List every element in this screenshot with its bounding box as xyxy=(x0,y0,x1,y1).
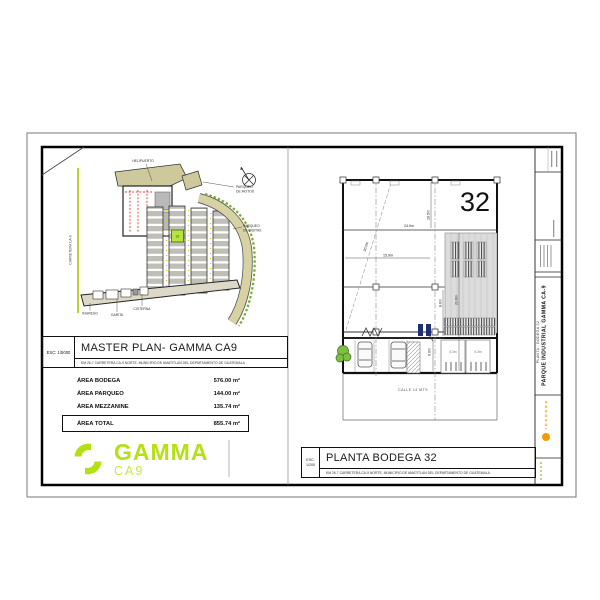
car-icon xyxy=(391,342,406,368)
area-table: ÁREA BODEGA 576.00 m² ÁREA PARQUEO 144.0… xyxy=(62,374,249,432)
car-icon xyxy=(358,342,372,367)
gamma-logo-icon xyxy=(70,441,106,477)
area-value: 144.00 m² xyxy=(214,391,240,397)
highlighted-unit-32: 32 xyxy=(172,230,184,242)
dim-right-upper: 16.5m xyxy=(427,210,431,220)
strip-text-placeholder xyxy=(551,151,552,167)
strip-text-placeholder xyxy=(556,151,557,167)
sheet-linework: CARRETERA CA-9 HELIPUERTO PARQUEO DE MOT… xyxy=(0,0,600,600)
strip-text-placeholder xyxy=(553,220,554,237)
strip-orange-logo-icon xyxy=(542,433,550,441)
dock-dim-right: 5.3m xyxy=(474,350,481,354)
garita-label: GARITA xyxy=(111,313,124,317)
floorplan-unit-number: 32 xyxy=(460,187,490,217)
highlighted-unit-number: 32 xyxy=(176,235,180,239)
hatched-zone xyxy=(407,342,420,373)
area-value: 576.00 m² xyxy=(214,378,240,384)
area-row-parqueo: ÁREA PARQUEO 144.00 m² xyxy=(62,387,249,400)
parqueo-visitas-label-2: DE VISITAS xyxy=(243,229,262,233)
strip-project-title: PARQUE INDUSTRIAL GAMMA CA-9 xyxy=(542,276,551,396)
drawing-sheet: CARRETERA CA-9 HELIPUERTO PARQUEO DE MOT… xyxy=(0,0,600,600)
dim-right-full: 21.6m xyxy=(455,295,459,305)
area-total-box: ÁREA TOTAL 855.74 m² xyxy=(62,415,249,432)
street-label: CALLE 14 MTS xyxy=(398,388,428,392)
dim-parking-depth: 6.0m xyxy=(428,348,432,356)
strip-text-placeholder xyxy=(547,245,548,267)
area-total-label: ÁREA TOTAL xyxy=(77,421,114,427)
logo-submark: CA9 xyxy=(114,465,208,478)
area-row-mezzanine: ÁREA MEZZANINE 135.74 m² xyxy=(62,400,249,413)
floorplan-address: KM 26.7 CARRETERA CA-9 NORTE, MUNICIPIO … xyxy=(320,468,535,477)
mezzanine-area xyxy=(444,233,497,335)
carretera-label: CARRETERA CA-9 xyxy=(69,235,73,265)
parqueo-visitas-label-1: PARQUEO xyxy=(243,224,260,228)
parqueo-motos-label-2: DE MOTOS xyxy=(236,190,255,194)
dim-width-top: 24.0m xyxy=(404,224,414,228)
strip-text-placeholder xyxy=(540,245,541,267)
masterplan-titleblock: ESC: 1/5000 MASTER PLAN- GAMMA CA9 KM 26… xyxy=(42,336,288,368)
gamma-logo: GAMMA CA9 xyxy=(70,438,235,480)
area-label: ÁREA BODEGA xyxy=(77,378,120,384)
area-row-bodega: ÁREA BODEGA 576.00 m² xyxy=(62,374,249,387)
parqueo-motos-label-1: PARQUEO xyxy=(236,185,253,189)
masterplan-address: KM 26.7 CARRETERA CA-9 NORTE, MUNICIPIO … xyxy=(75,358,287,367)
strip-sheet-title: PLANTA - BODEGA 32 xyxy=(536,292,542,392)
area-label: ÁREA MEZZANINE xyxy=(77,404,129,410)
ingreso-label: INGRESO xyxy=(82,312,98,316)
cisterna-label: CISTERNA xyxy=(133,307,151,311)
area-total-value: 855.74 m² xyxy=(214,421,240,427)
masterplan-title: MASTER PLAN- GAMMA CA9 xyxy=(75,337,287,358)
floorplan-scale: ESC: 1/200 xyxy=(302,448,320,477)
dim-mid-width: 15.9m xyxy=(383,254,393,258)
floorplan-title: PLANTA BODEGA 32 xyxy=(320,448,535,468)
dim-right-lower: 8.6m xyxy=(439,299,443,307)
floorplan-titleblock: ESC: 1/200 PLANTA BODEGA 32 KM 26.7 CARR… xyxy=(301,447,536,478)
masterplan-scale: ESC: 1/5000 xyxy=(43,337,75,367)
strip-text-placeholder xyxy=(544,245,545,267)
logo-wordmark: GAMMA xyxy=(114,441,208,464)
area-label: ÁREA PARQUEO xyxy=(77,391,124,397)
area-value: 135.74 m² xyxy=(214,404,240,410)
helipuerto-label: HELIPUERTO xyxy=(132,159,154,163)
strip-text-placeholder xyxy=(551,245,552,267)
dock-dim-left: 5.3m xyxy=(449,350,456,354)
